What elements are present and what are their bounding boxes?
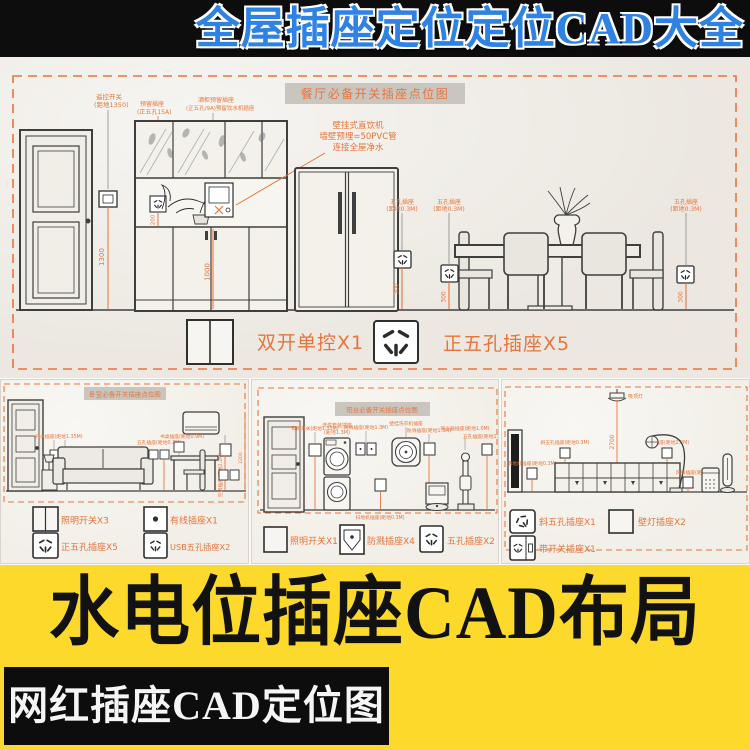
svg-text:吸顶灯: 吸顶灯 [628, 393, 643, 400]
svg-text:斜五孔插座(距地0.3M): 斜五孔插座(距地0.3M) [540, 439, 589, 446]
table-base [528, 306, 572, 310]
svg-text:扫地机插座(距地0.3M): 扫地机插座(距地0.3M) [355, 514, 404, 521]
wall-lamp-socket-icon [609, 510, 633, 533]
sofa [53, 447, 153, 490]
door-elevation [8, 400, 43, 491]
svg-text:(距地0.3M): (距地0.3M) [386, 205, 417, 213]
svg-text:带开关插座X1: 带开关插座X1 [539, 543, 596, 555]
refrigerator [295, 168, 398, 311]
livingroom-elevation-panel: 吸顶灯 2700 落地灯插座(距地0.3M) 斜五孔插座(距地0.3M) 壁灯插… [501, 379, 750, 564]
fridge-handle-right [352, 192, 356, 234]
svg-text:吸尘器插座(距地1.0M): 吸尘器插座(距地1.0M) [440, 425, 489, 432]
dim-200: 200 [151, 214, 157, 225]
wall-switch: 遥控开关 (距地1350) 1300 [94, 92, 129, 309]
tower-fan [721, 454, 735, 493]
balcony-drawing: 阳台必备开关插座点位图 照明开关(距地1.35M) 洗烘套装插座 (距地1.3M… [252, 380, 498, 563]
svg-text:壁挂式直饮机: 壁挂式直饮机 [332, 120, 384, 131]
display-cabinet: 200 1000 [135, 121, 287, 311]
svg-text:壁挂洗衣机插座: 壁挂洗衣机插座 [389, 420, 423, 427]
panel-title: 卧室必备开关插座点位图 [89, 390, 161, 399]
svg-text:300: 300 [441, 291, 448, 303]
svg-text:书桌插座(距地0.9M): 书桌插座(距地0.9M) [160, 433, 204, 440]
svg-text:五孔插座X2: 五孔插座X2 [447, 535, 495, 547]
legend-socket-label: 正五孔插座X5 [443, 333, 570, 355]
svg-text:壁灯插座X2: 壁灯插座X2 [638, 516, 686, 528]
five-hole-socket-icon [374, 321, 418, 363]
svg-text:五孔插座: 五孔插座 [674, 198, 698, 206]
top-banner: 全屋插座定位定位CAD大全 [0, 0, 750, 57]
yellow-banner-title: 水电位插座CAD布局 [49, 576, 701, 652]
robot-socket: 扫地机插座(距地0.3M) [355, 479, 404, 521]
fridge-handle-left [338, 192, 342, 234]
dim-1000: 1000 [204, 263, 212, 281]
door-elevation [20, 130, 92, 310]
svg-text:(距地1350): (距地1350) [94, 100, 129, 109]
svg-text:2200: 2200 [238, 452, 244, 464]
svg-text:落地灯插座(距地0.3M): 落地灯插座(距地0.3M) [507, 460, 556, 467]
svg-text:开关插座(距地1.35M): 开关插座(距地1.35M) [35, 433, 82, 440]
vase-branches [548, 187, 590, 215]
livingroom-drawing: 吸顶灯 2700 落地灯插座(距地0.3M) 斜五孔插座(距地0.3M) 壁灯插… [502, 380, 749, 563]
dining-room-drawing: 餐厅必备开关插座点位图 遥控开关 (距地1350) 1300 预留插座 (正五孔… [0, 57, 750, 378]
sub-panels-row: 卧室必备开关插座点位图 空调插座(距地2.2M) 开关插座(距地1.35M) [0, 378, 750, 565]
bottom-label-box: 网红插座CAD定位图 [4, 667, 389, 745]
air-purifier [702, 468, 719, 492]
five-hole-socket-icon [420, 526, 443, 552]
svg-text:2700: 2700 [609, 434, 616, 449]
svg-text:300: 300 [678, 291, 685, 303]
svg-text:防溅插座X4: 防溅插座X4 [367, 535, 415, 547]
air-conditioner: 空调插座(距地2.2M) [183, 412, 231, 497]
dining-room-elevation-panel: 餐厅必备开关插座点位图 遥控开关 (距地1350) 1300 预留插座 (正五孔… [0, 57, 750, 378]
svg-text:酒柜预留插座: 酒柜预留插座 [198, 96, 234, 104]
slanted-five-hole-socket-icon [510, 510, 535, 533]
svg-text:照明开关X1: 照明开关X1 [290, 535, 338, 547]
bedroom-drawing: 卧室必备开关插座点位图 空调插座(距地2.2M) 开关插座(距地1.35M) [1, 380, 248, 563]
main-legend: 双开单控X1 正五孔插座X5 [187, 320, 570, 364]
usb-socket-icon [144, 533, 167, 558]
legend-switch-label: 双开单控X1 [257, 332, 364, 354]
svg-text:(距地0.3M): (距地0.3M) [670, 205, 701, 213]
bottom-label-title: 网红插座CAD定位图 [8, 686, 385, 726]
svg-text:300: 300 [394, 283, 401, 295]
svg-text:五孔插座(距地1.5M): 五孔插座(距地1.5M) [463, 433, 498, 440]
livingroom-legend: 斜五孔插座X1 壁灯插座X2 带开关插座X1 [510, 510, 686, 560]
floor-lamp [508, 430, 522, 492]
robot-vacuum [426, 483, 448, 511]
svg-text:五孔插座: 五孔插座 [390, 198, 414, 206]
svg-text:防溅插座(距地1.3M): 防溅插座(距地1.3M) [344, 424, 388, 431]
low-cabinet [555, 463, 680, 492]
main-title-box: 餐厅必备开关插座点位图 [285, 83, 465, 104]
shelf-appliance [205, 183, 233, 217]
balcony-elevation-panel: 阳台必备开关插座点位图 照明开关(距地1.35M) 洗烘套装插座 (距地1.3M… [251, 379, 499, 564]
wall-socket-3: 五孔插座 (距地0.3M) 300 [670, 198, 701, 309]
main-title: 餐厅必备开关插座点位图 [301, 86, 450, 101]
top-banner-title: 全屋插座定位定位CAD大全 [196, 7, 750, 51]
svg-text:(距地0.3M): (距地0.3M) [433, 205, 464, 213]
wall-mini-washer: 壁挂洗衣机插座 [389, 420, 423, 466]
svg-text:连接全屋净水: 连接全屋净水 [332, 142, 384, 153]
yellow-banner: 水电位插座CAD布局 [0, 565, 750, 663]
side-chair-right [630, 232, 663, 310]
washer-dryer-stack: 洗烘套装插座 (距地1.3M) [322, 422, 352, 510]
svg-text:遥控开关: 遥控开关 [96, 92, 123, 101]
bedroom-legend: 照明开关X3 有线插座X1 正五孔插座X5 USB五孔插座X2 [33, 507, 230, 558]
svg-text:USB五孔插座X2: USB五孔插座X2 [170, 542, 230, 552]
svg-text:五孔插座: 五孔插座 [437, 198, 461, 206]
desk-top [171, 456, 218, 460]
side-chair-left [459, 232, 492, 310]
switched-socket-icon [510, 536, 535, 560]
svg-text:预留插座: 预留插座 [140, 100, 164, 108]
svg-text:(正五孔/9A)预留饮水机插座: (正五孔/9A)预留饮水机插座 [186, 104, 255, 112]
bottom-strip: 网红插座CAD定位图 [0, 663, 750, 750]
five-hole-socket-icon [33, 533, 58, 558]
door-knob [86, 219, 90, 223]
svg-text:墙壁预埋=50PVC管: 墙壁预埋=50PVC管 [319, 131, 396, 142]
panel-title: 阳台必备开关插座点位图 [346, 405, 418, 414]
bedroom-elevation-panel: 卧室必备开关插座点位图 空调插座(距地2.2M) 开关插座(距地1.35M) [0, 379, 249, 564]
front-chair-right [582, 233, 626, 309]
dim-1300: 1300 [98, 248, 106, 266]
chair-seat [184, 470, 204, 474]
dining-set [455, 187, 663, 310]
svg-text:斜五孔插座X1: 斜五孔插座X1 [539, 516, 596, 528]
svg-text:有线插座X1: 有线插座X1 [170, 515, 218, 527]
balcony-legend: 照明开关X1 防溅插座X4 五孔插座X2 [264, 525, 495, 554]
svg-text:正五孔插座X5: 正五孔插座X5 [61, 541, 118, 553]
svg-text:照明开关X3: 照明开关X3 [61, 515, 109, 527]
svg-text:(正五孔15A): (正五孔15A) [137, 108, 171, 116]
switch-icon [264, 527, 287, 552]
